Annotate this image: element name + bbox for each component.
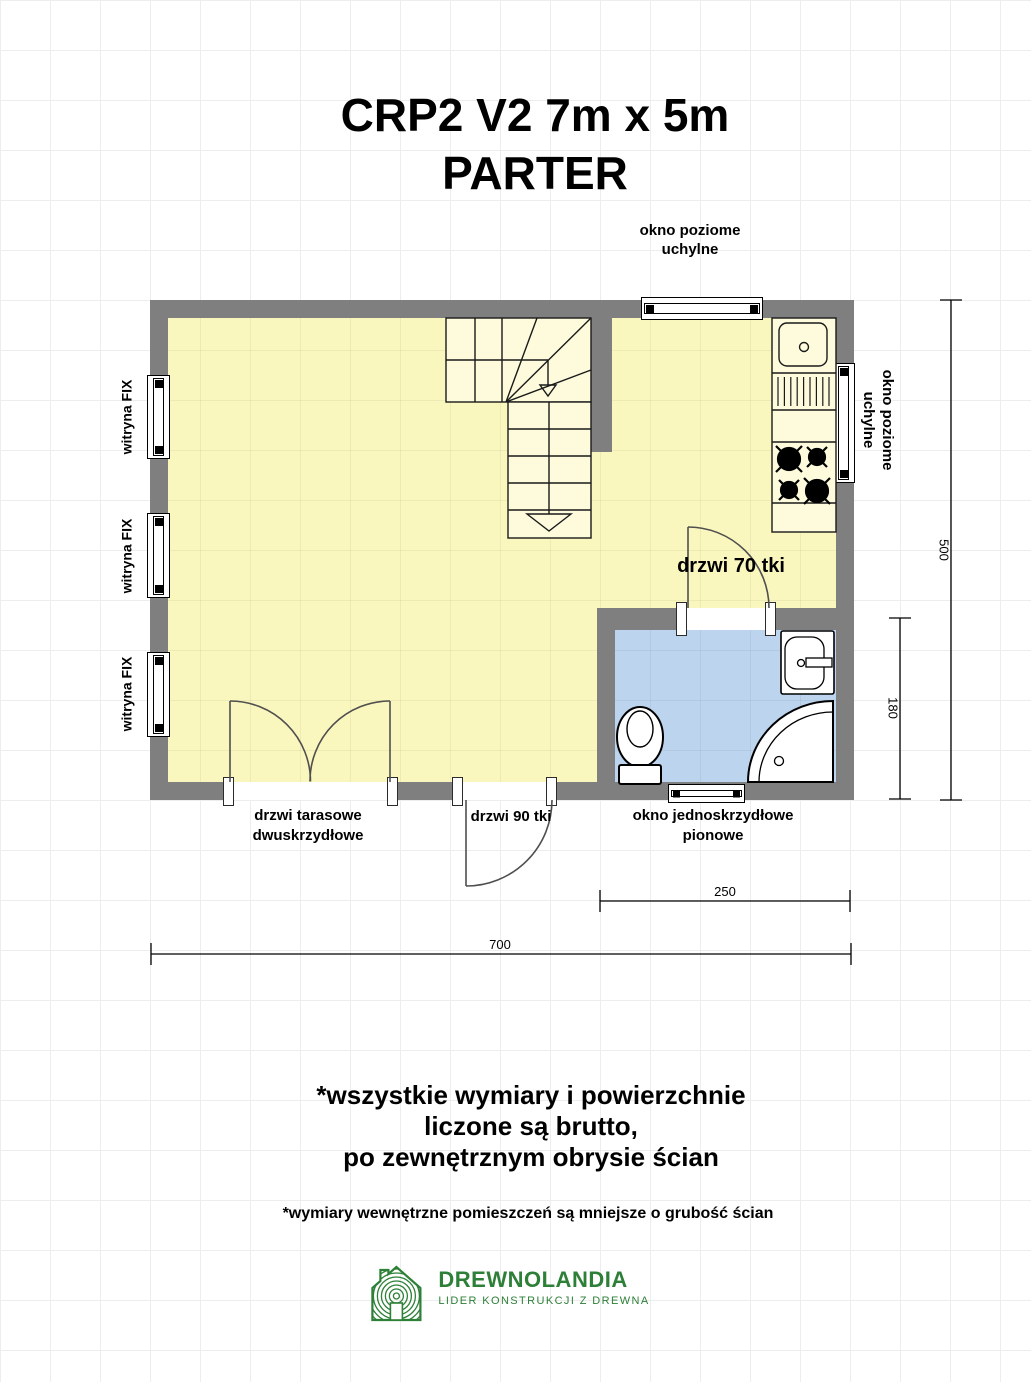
label-window-right-line1: okno poziome (877, 370, 896, 471)
label-window-left-3: witryna FIX (118, 657, 136, 732)
label-entry-door: drzwi 90 tki (471, 808, 552, 827)
dimension-bathroom-width-value: 250 (714, 884, 736, 899)
staircase (446, 318, 591, 538)
floor-plan-page: CRP2 V2 7m x 5m PARTER (0, 0, 1031, 1382)
label-window-left-1: witryna FIX (118, 380, 136, 455)
footnote: *wymiary wewnętrzne pomieszczeń są mniej… (283, 1205, 774, 1223)
dimension-bathroom-height-value: 180 (886, 697, 901, 719)
dimension-total-width-value: 700 (489, 937, 511, 952)
shower (748, 701, 833, 782)
notes: *wszystkie wymiary i powierzchnie liczon… (316, 1080, 745, 1173)
label-window-right-line2: uchylne (858, 370, 877, 471)
terrace-door-swing (230, 701, 390, 782)
logo-name: DREWNOLANDIA (438, 1268, 649, 1292)
dimension-total-height-value: 500 (937, 539, 952, 561)
notes-line1: *wszystkie wymiary i powierzchnie (316, 1080, 745, 1111)
logo-house-icon (366, 1258, 426, 1324)
label-window-top: okno poziome uchylne (620, 222, 760, 260)
plan-linework (0, 0, 1031, 1382)
toilet (617, 707, 663, 784)
label-terrace-door: drzwi tarasowe dwuskrzydłowe (226, 806, 391, 846)
washbasin (781, 631, 834, 694)
label-bathroom-door: drzwi 70 tki (677, 554, 785, 579)
label-window-right: okno poziome uchylne (858, 370, 896, 471)
logo-text: DREWNOLANDIA LIDER KONSTRUKCJI Z DREWNA (438, 1268, 649, 1307)
notes-line3: po zewnętrznym obrysie ścian (316, 1142, 745, 1173)
logo-tagline: LIDER KONSTRUKCJI Z DREWNA (438, 1295, 649, 1307)
label-window-left-2: witryna FIX (118, 519, 136, 594)
notes-line2: liczone są brutto, (316, 1111, 745, 1142)
label-window-bathroom: okno jednoskrzydłowe pionowe (608, 806, 818, 846)
logo: DREWNOLANDIA LIDER KONSTRUKCJI Z DREWNA (366, 1258, 649, 1324)
